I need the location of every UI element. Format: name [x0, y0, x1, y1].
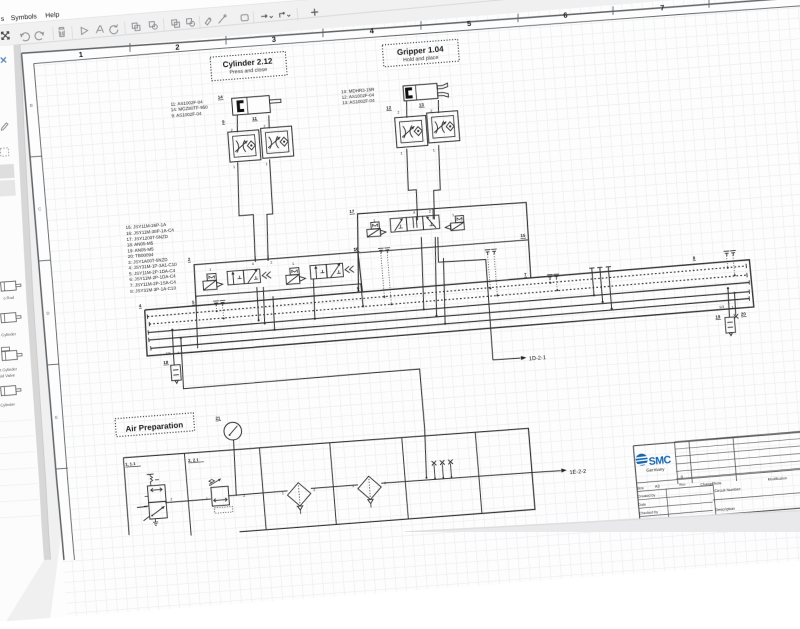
svg-text:Date: Date [640, 519, 648, 524]
svg-text:6: 6 [563, 10, 568, 19]
svg-text:1: 1 [452, 213, 454, 217]
svg-text:2: 2 [175, 42, 180, 51]
svg-text:1: 1 [292, 262, 294, 266]
svg-text:2: 2 [397, 110, 399, 114]
svg-text:13: 13 [419, 102, 425, 107]
svg-text:Size: Size [637, 486, 644, 491]
svg-text:1E-2-2: 1E-2-2 [569, 469, 586, 476]
svg-text:1: 1 [265, 162, 267, 166]
svg-text:D: D [46, 311, 50, 316]
svg-text:2: 2 [429, 209, 431, 213]
svg-text:5/3: 5/3 [166, 352, 171, 356]
svg-text:E: E [55, 415, 58, 420]
svg-text:18: 18 [163, 360, 169, 365]
svg-text:2: 2 [231, 128, 233, 132]
svg-text:1: 1 [433, 149, 435, 153]
svg-text:14: 14 [218, 95, 224, 100]
svg-text:15: 15 [520, 233, 526, 238]
svg-text:B: B [30, 103, 34, 108]
svg-text:1D-2-1: 1D-2-1 [529, 355, 547, 362]
svg-text:Help: Help [45, 11, 60, 19]
svg-text:5/3: 5/3 [719, 305, 724, 309]
svg-text:1: 1 [233, 165, 235, 169]
svg-text:7: 7 [660, 3, 665, 12]
svg-text:2: 2 [430, 109, 432, 113]
svg-text:17: 17 [349, 209, 355, 214]
svg-text:4: 4 [252, 262, 254, 266]
svg-text:1: 1 [209, 268, 211, 272]
svg-text:19: 19 [715, 314, 721, 319]
svg-text:1: 1 [400, 152, 402, 156]
svg-text:3: 3 [271, 34, 276, 43]
svg-text:A3: A3 [655, 483, 660, 488]
svg-text:4: 4 [413, 210, 415, 214]
svg-text:21: 21 [215, 416, 221, 421]
svg-text:16: 16 [353, 247, 359, 252]
svg-text:Date: Date [638, 502, 646, 507]
svg-text:20: 20 [741, 312, 747, 317]
svg-text:12: 12 [386, 105, 392, 110]
svg-text:Rev: Rev [679, 482, 686, 486]
svg-text:1: 1 [373, 219, 375, 223]
svg-text:2: 2 [270, 261, 272, 265]
svg-text:o Rod: o Rod [3, 295, 14, 301]
svg-text:2: 2 [263, 124, 265, 128]
svg-text:1: 1 [78, 50, 83, 59]
svg-text:5: 5 [467, 19, 472, 28]
